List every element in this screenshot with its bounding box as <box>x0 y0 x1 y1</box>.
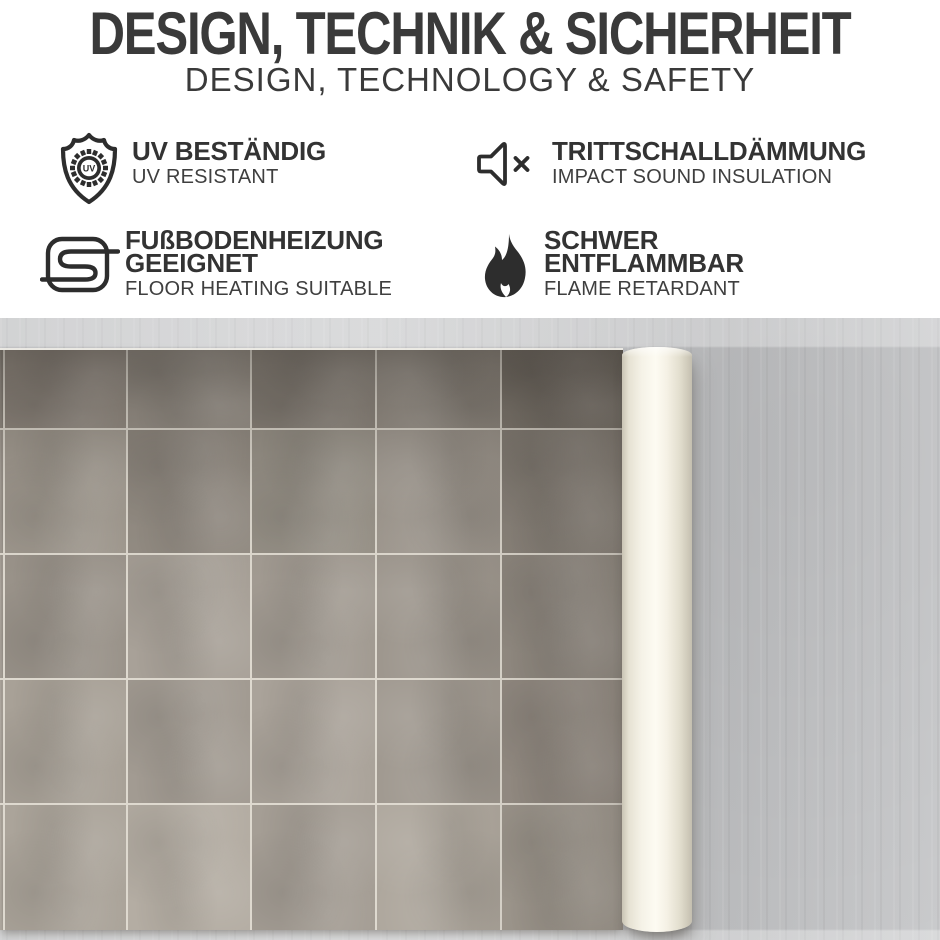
feature-subtitle: UV RESISTANT <box>132 167 326 187</box>
tile <box>128 805 250 930</box>
tile <box>128 680 250 803</box>
tile <box>252 680 375 803</box>
tile <box>0 555 3 678</box>
tile <box>252 805 375 930</box>
feature-subtitle: FLOOR HEATING SUITABLE <box>125 279 392 299</box>
feature-floor-heating: FUßBODENHEIZUNG GEEIGNET FLOOR HEATING S… <box>125 229 392 299</box>
tile <box>0 680 3 803</box>
feature-title: SCHWER ENTFLAMMBAR <box>544 229 744 275</box>
feature-title: TRITTSCHALLDÄMMUNG <box>552 140 866 163</box>
header: DESIGN, TECHNIK & SICHERHEIT DESIGN, TEC… <box>0 0 940 318</box>
speaker-muted-icon <box>474 139 532 194</box>
tile <box>128 555 250 678</box>
tile <box>5 805 126 930</box>
uv-badge-label: UV <box>83 164 96 174</box>
tile <box>502 350 623 428</box>
tile <box>0 430 3 553</box>
product-infographic: DESIGN, TECHNIK & SICHERHEIT DESIGN, TEC… <box>0 0 940 940</box>
feature-title: UV BESTÄNDIG <box>132 140 326 163</box>
feature-sound: TRITTSCHALLDÄMMUNG IMPACT SOUND INSULATI… <box>552 140 866 187</box>
tile <box>5 430 126 553</box>
tile <box>252 555 375 678</box>
feature-uv: UV BESTÄNDIG UV RESISTANT <box>132 140 326 187</box>
tile <box>128 430 250 553</box>
tile <box>5 555 126 678</box>
tile <box>377 430 500 553</box>
feature-subtitle: FLAME RETARDANT <box>544 279 744 299</box>
tile <box>502 555 623 678</box>
tile <box>377 805 500 930</box>
tile <box>502 805 623 930</box>
flame-icon <box>483 233 529 306</box>
tile <box>252 350 375 428</box>
tile <box>5 350 126 428</box>
tile <box>252 430 375 553</box>
feature-flame: SCHWER ENTFLAMMBAR FLAME RETARDANT <box>544 229 744 299</box>
tile <box>377 555 500 678</box>
tile <box>502 680 623 803</box>
vinyl-roll <box>622 347 692 932</box>
tile <box>0 350 3 428</box>
uv-shield-icon: UV <box>57 132 121 211</box>
tile <box>377 350 500 428</box>
tile-grid <box>0 350 623 930</box>
feature-subtitle: IMPACT SOUND INSULATION <box>552 167 866 187</box>
page-subtitle: DESIGN, TECHNOLOGY & SAFETY <box>0 63 940 97</box>
tile <box>128 350 250 428</box>
vinyl-flooring-sheet <box>0 350 623 930</box>
tile <box>5 680 126 803</box>
tile <box>0 805 3 930</box>
tile <box>377 680 500 803</box>
tile <box>502 430 623 553</box>
page-title: DESIGN, TECHNIK & SICHERHEIT <box>85 4 856 64</box>
floor-heating-icon <box>40 232 120 305</box>
product-photo <box>0 318 940 940</box>
feature-title: FUßBODENHEIZUNG GEEIGNET <box>125 229 392 275</box>
